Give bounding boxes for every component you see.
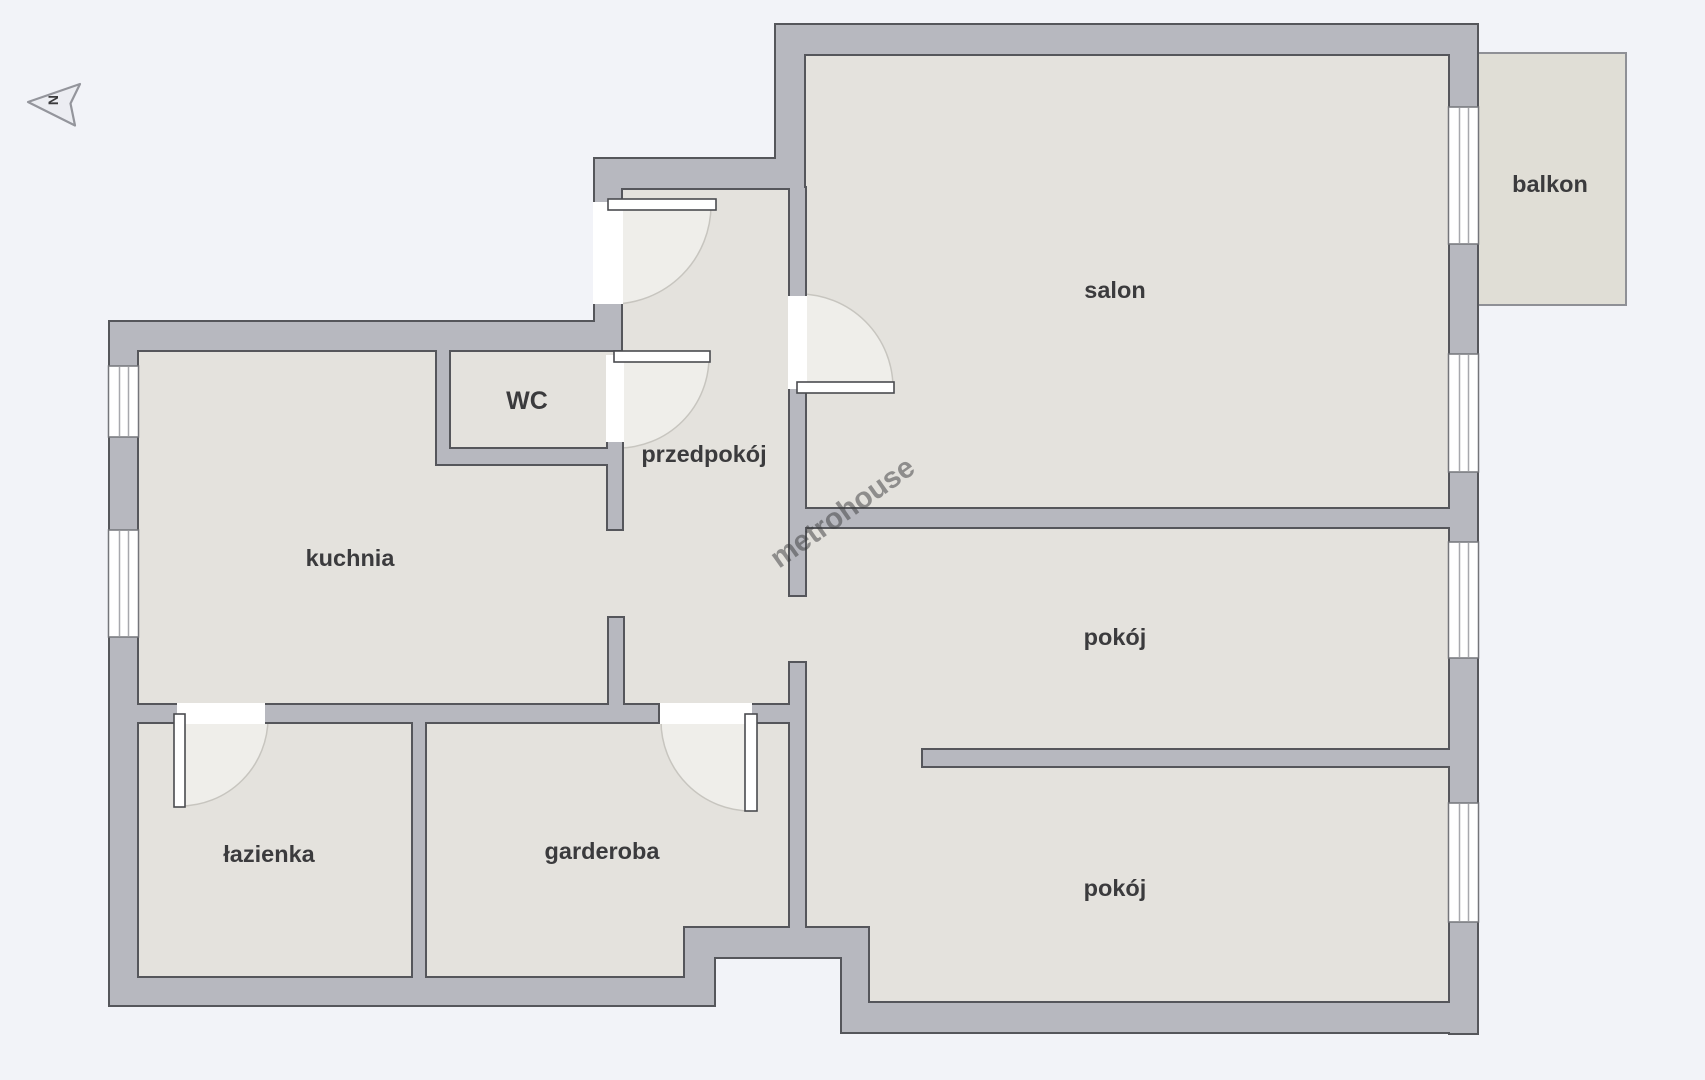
svg-text:WC: WC xyxy=(506,387,548,415)
svg-text:łazienka: łazienka xyxy=(223,841,315,867)
svg-text:pokój: pokój xyxy=(1084,624,1147,650)
svg-text:salon: salon xyxy=(1084,277,1145,303)
svg-text:pokój: pokój xyxy=(1084,875,1147,901)
svg-text:kuchnia: kuchnia xyxy=(306,545,396,571)
svg-text:przedpokój: przedpokój xyxy=(641,441,766,467)
svg-text:balkon: balkon xyxy=(1512,171,1588,197)
svg-text:N: N xyxy=(45,95,61,105)
svg-text:garderoba: garderoba xyxy=(545,838,661,864)
